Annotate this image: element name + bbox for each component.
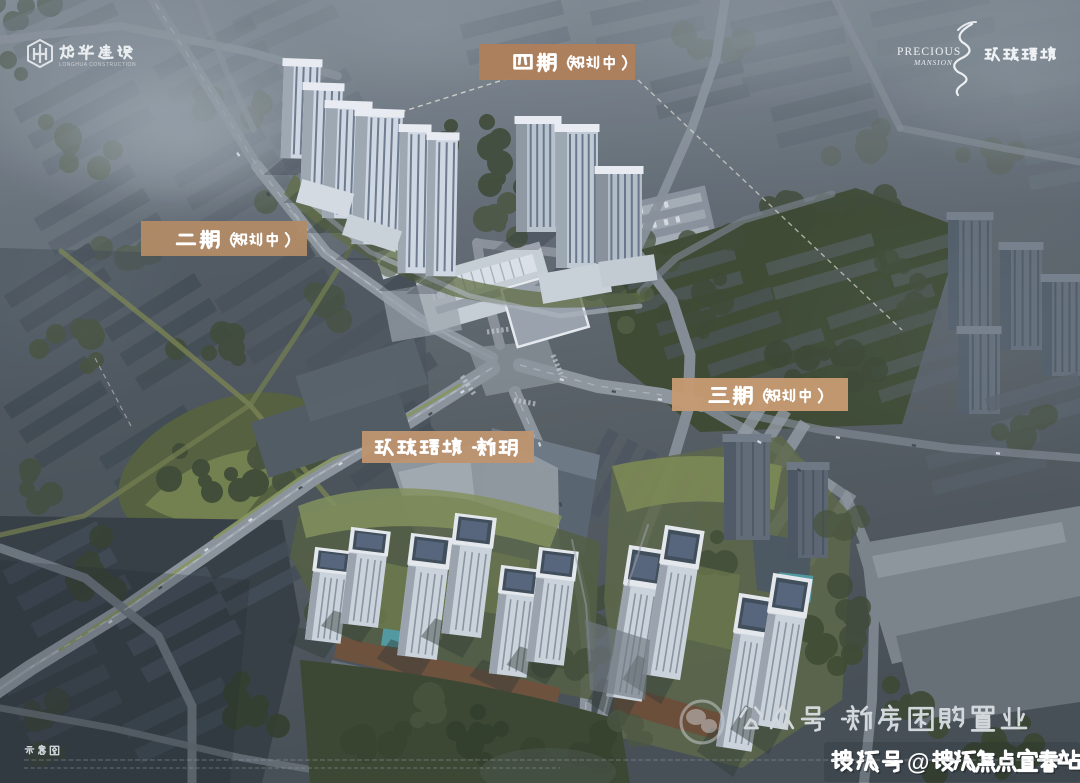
svg-text:LONGHUA CONSTRUCTION: LONGHUA CONSTRUCTION (59, 62, 136, 68)
svg-text:@: @ (907, 749, 929, 775)
svg-text:PRECIOUS: PRECIOUS (897, 46, 961, 58)
svg-text:MANSION: MANSION (913, 58, 953, 67)
